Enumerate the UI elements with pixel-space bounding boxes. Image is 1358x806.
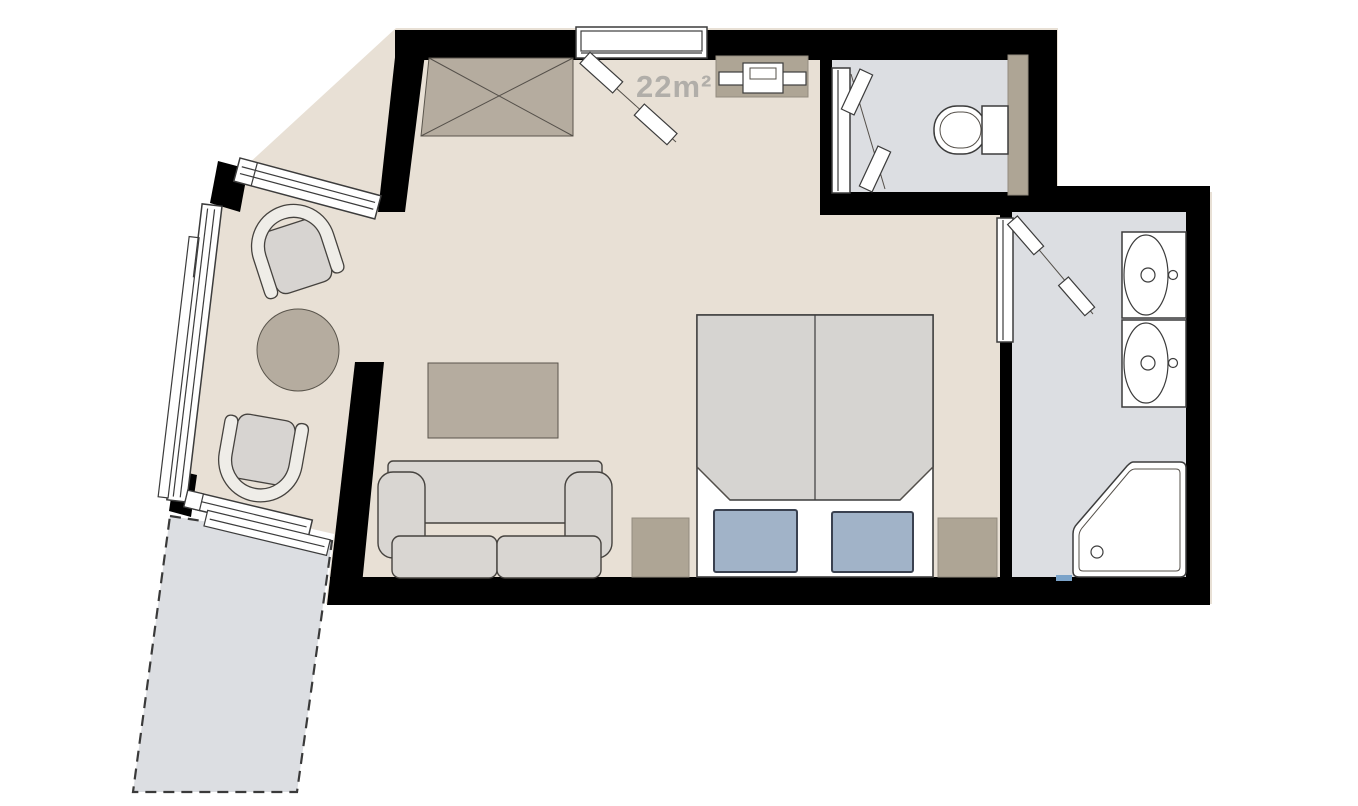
wall-wc-bottom — [820, 192, 1012, 215]
wc-shelf — [1008, 55, 1028, 195]
drain — [1141, 356, 1155, 370]
wall-bottom — [330, 577, 1210, 605]
coffee-table — [428, 363, 558, 438]
double-bed — [697, 315, 933, 577]
wall-wc-right — [1028, 30, 1057, 206]
threshold-mark — [1056, 575, 1072, 581]
drain — [1141, 268, 1155, 282]
nightstand-left — [632, 518, 689, 577]
wall-right — [1186, 186, 1210, 605]
toilet — [934, 106, 1008, 154]
entrance-window — [576, 27, 707, 58]
wardrobe — [421, 58, 573, 136]
washbasin-upper — [1122, 232, 1186, 318]
faucet — [1169, 271, 1178, 280]
wall-bathroom-top — [1012, 186, 1210, 212]
bed-pillow-right — [832, 512, 913, 572]
nightstand-right — [938, 518, 997, 577]
area-label: 22m² — [636, 69, 712, 104]
balcony-floor — [133, 516, 332, 792]
sofa — [378, 461, 612, 578]
faucet — [1169, 359, 1178, 368]
bed-pillow-left — [714, 510, 797, 572]
tv-console — [716, 56, 808, 97]
toilet-tank — [982, 106, 1008, 154]
washbasin-lower — [1122, 320, 1186, 407]
wall-wc-left — [820, 30, 832, 215]
sofa-seat-right — [497, 536, 601, 578]
toilet-bowl — [934, 106, 986, 154]
balcony — [133, 516, 332, 792]
floor-plan-canvas: 22m² — [0, 0, 1358, 806]
round-side-table — [257, 309, 339, 391]
bathtub-drain — [1091, 546, 1103, 558]
sofa-seat-left — [392, 536, 497, 578]
